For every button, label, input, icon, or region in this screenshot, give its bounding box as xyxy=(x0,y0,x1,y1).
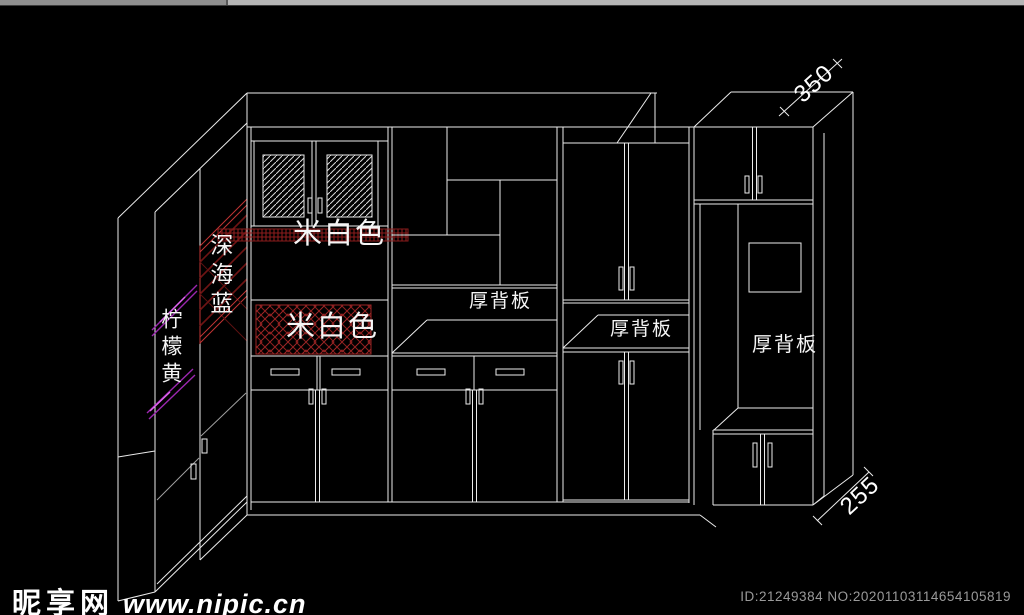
door-handle xyxy=(630,361,634,384)
label-thick-back-panel-right: 厚背板 xyxy=(610,320,673,340)
watermark-site-name: 昵享网 xyxy=(12,580,114,615)
door-handle xyxy=(745,176,749,193)
label-deep-sea-blue: 深海蓝 xyxy=(207,233,231,320)
image-id-text: ID:21249384 NO:20201103114654105819 xyxy=(740,589,1011,604)
door-handle xyxy=(753,443,757,467)
door-handle xyxy=(619,361,623,384)
label-thick-back-panel-far-right: 厚背板 xyxy=(752,335,818,356)
glass-pane xyxy=(327,155,372,217)
drawer-handle xyxy=(332,369,360,375)
label-lemon-yellow: 柠檬黄 xyxy=(159,308,181,389)
door-handle xyxy=(768,443,772,467)
label-thick-back-panel-middle: 厚背板 xyxy=(469,292,532,312)
door-handle xyxy=(322,389,326,404)
left-side-cabinet xyxy=(118,93,247,601)
door-handle xyxy=(309,389,313,404)
door-handle xyxy=(466,389,470,404)
drawer-handle xyxy=(271,369,299,375)
niche-opening xyxy=(749,243,801,292)
label-beige-upper: 米白色 xyxy=(293,219,386,249)
door-handle xyxy=(479,389,483,404)
section-d xyxy=(694,127,813,505)
watermark: 昵享网 www.nipic.cn xyxy=(12,580,307,615)
door-handle xyxy=(318,198,322,213)
section-b xyxy=(392,127,557,502)
cad-screenshot: 深海蓝 柠檬黄 米白色 米白色 厚背板 厚背板 厚背板 350 255 昵享网 … xyxy=(0,0,1024,615)
door-handle xyxy=(619,267,623,290)
door-handle xyxy=(191,464,196,479)
drawer-handle xyxy=(496,369,524,375)
drawer-handle xyxy=(417,369,445,375)
door-handle xyxy=(202,439,207,453)
door-handle xyxy=(758,176,762,193)
door-handle xyxy=(308,198,312,213)
label-beige-lower: 米白色 xyxy=(286,312,379,342)
watermark-site-url: www.nipic.cn xyxy=(123,589,307,615)
door-handle xyxy=(630,267,634,290)
glass-pane xyxy=(263,155,304,217)
